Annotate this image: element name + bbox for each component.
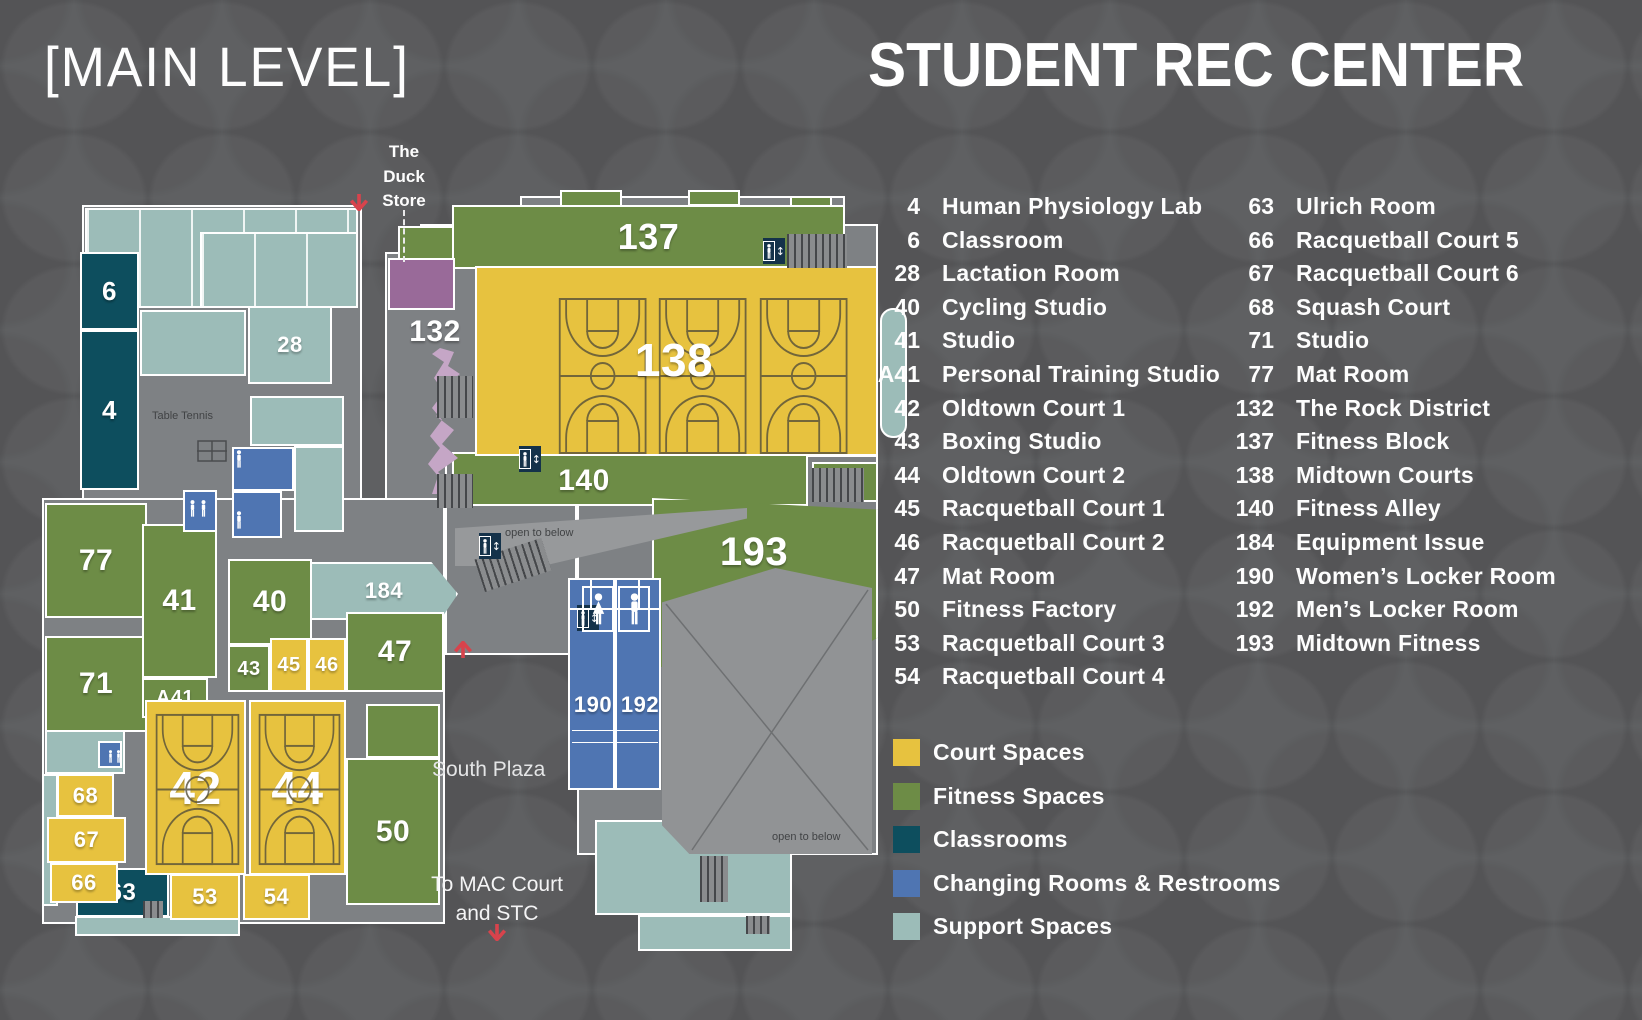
page-title-level: [MAIN LEVEL] [44, 34, 410, 99]
stairs-icon [787, 234, 847, 268]
room-46: 46 [308, 638, 346, 692]
room-label: 47 [378, 637, 412, 667]
color-legend: Court SpacesFitness SpacesClassroomsChan… [893, 731, 1281, 949]
directory-room-number: 190 [1212, 563, 1274, 590]
directory-entry: 63Ulrich Room [1212, 193, 1556, 227]
directory-room-name: Racquetball Court 3 [942, 630, 1165, 657]
room-label: 193 [720, 532, 788, 572]
directory-room-name: Midtown Fitness [1296, 630, 1481, 657]
room-label: 68 [73, 785, 98, 807]
room-71: 71 [45, 636, 147, 732]
directory-room-name: Cycling Studio [942, 294, 1107, 321]
directory-entry: 67Racquetball Court 6 [1212, 260, 1556, 294]
stairs-icon [812, 468, 864, 502]
duck-store-label: The Duck Store [368, 140, 440, 214]
directory-room-number: 77 [1212, 361, 1274, 388]
elevator-icon: ↕ [479, 533, 501, 559]
directory-room-number: 46 [872, 529, 920, 556]
directory-room-number: 132 [1212, 395, 1274, 422]
room-138: 138 [475, 266, 878, 456]
room-label: 28 [277, 334, 302, 356]
directory-room-name: Racquetball Court 6 [1296, 260, 1519, 287]
restroom-men-icon [234, 450, 244, 468]
directory-column-2: 63Ulrich Room66Racquetball Court 567Racq… [1212, 193, 1556, 663]
directory-room-number: 50 [872, 596, 920, 623]
map-area [250, 396, 344, 446]
to-mac-line: and STC [412, 899, 582, 928]
elevator-icon: ↕ [763, 238, 785, 264]
room-140: 140 [452, 452, 808, 506]
legend-swatch [893, 870, 920, 897]
locker-divider [590, 580, 592, 608]
climbing-wall [424, 348, 468, 494]
open-to-below-label: open to below [772, 831, 841, 843]
directory-room-name: Racquetball Court 5 [1296, 227, 1519, 254]
directory-room-number: 193 [1212, 630, 1274, 657]
directory-entry: 42Oldtown Court 1 [872, 395, 1220, 429]
stairs-icon [700, 856, 728, 902]
legend-label: Court Spaces [933, 739, 1085, 766]
directory-entry: A41Personal Training Studio [872, 361, 1220, 395]
room-53: 53 [170, 874, 240, 920]
directory-room-name: Equipment Issue [1296, 529, 1485, 556]
directory-entry: 71Studio [1212, 327, 1556, 361]
room-label: 138 [635, 337, 713, 383]
locker-divider [570, 608, 660, 610]
stairs-icon [437, 376, 473, 418]
directory-room-number: 68 [1212, 294, 1274, 321]
directory-room-name: Men’s Locker Room [1296, 596, 1519, 623]
map-area [388, 258, 455, 310]
directory-room-name: Fitness Block [1296, 428, 1449, 455]
room-label: 71 [79, 669, 113, 699]
directory-room-name: Mat Room [1296, 361, 1410, 388]
directory-entry: 44Oldtown Court 2 [872, 462, 1220, 496]
room-label: 67 [74, 829, 99, 851]
room-68: 68 [57, 774, 114, 817]
room-label: 50 [376, 817, 410, 847]
duck-store-line: Duck [368, 165, 440, 190]
room-67: 67 [47, 817, 126, 863]
directory-room-number: 42 [872, 395, 920, 422]
map-area [294, 446, 344, 532]
directory-entry: 190Women’s Locker Room [1212, 563, 1556, 597]
restroom-icon [115, 750, 122, 763]
directory-room-name: Racquetball Court 2 [942, 529, 1165, 556]
directory-room-number: 40 [872, 294, 920, 321]
room-label: 77 [79, 546, 113, 576]
room-44: 44 [249, 700, 346, 875]
directory-entry: 138Midtown Courts [1212, 462, 1556, 496]
directory-room-name: Oldtown Court 1 [942, 395, 1125, 422]
directory-room-number: 28 [872, 260, 920, 287]
legend-swatch [893, 913, 920, 940]
directory-room-name: Human Physiology Lab [942, 193, 1202, 220]
directory-room-number: A41 [872, 361, 920, 388]
directory-room-name: Racquetball Court 4 [942, 663, 1165, 690]
locker-divider [572, 742, 658, 743]
room-41: 41 [142, 524, 217, 678]
directory-entry: 45Racquetball Court 1 [872, 495, 1220, 529]
legend-item: Changing Rooms & Restrooms [893, 862, 1281, 906]
room-label: 4 [102, 397, 117, 423]
duck-store-line: Store [368, 189, 440, 214]
restroom-icon [199, 500, 208, 517]
room-77: 77 [45, 503, 147, 618]
directory-entry: 50Fitness Factory [872, 596, 1220, 630]
to-mac-line: To MAC Court [412, 870, 582, 899]
directory-room-name: Fitness Factory [942, 596, 1117, 623]
directory-room-name: Ulrich Room [1296, 193, 1436, 220]
directory-entry: 40Cycling Studio [872, 294, 1220, 328]
room-label: 43 [237, 659, 260, 679]
legend-item: Fitness Spaces [893, 775, 1281, 819]
directory-entry: 43Boxing Studio [872, 428, 1220, 462]
directory-entry: 28Lactation Room [872, 260, 1220, 294]
legend-item: Classrooms [893, 818, 1281, 862]
directory-room-number: 137 [1212, 428, 1274, 455]
directory-room-name: Studio [1296, 327, 1369, 354]
directory-entry: 41Studio [872, 327, 1220, 361]
legend-swatch [893, 826, 920, 853]
directory-entry: 47Mat Room [872, 563, 1220, 597]
directory-room-name: The Rock District [1296, 395, 1490, 422]
map-area [366, 704, 440, 758]
room-4: 4 [80, 330, 139, 490]
directory-entry: 132The Rock District [1212, 395, 1556, 429]
directory-room-name: Midtown Courts [1296, 462, 1474, 489]
duck-store-line: The [368, 140, 440, 165]
directory-entry: 66Racquetball Court 5 [1212, 227, 1556, 261]
legend-label: Changing Rooms & Restrooms [933, 870, 1281, 897]
directory-room-number: 192 [1212, 596, 1274, 623]
directory-room-number: 45 [872, 495, 920, 522]
directory-room-number: 43 [872, 428, 920, 455]
map-area [140, 310, 246, 376]
directory-room-name: Mat Room [942, 563, 1056, 590]
directory-entry: 140Fitness Alley [1212, 495, 1556, 529]
room-label: 6 [102, 278, 117, 304]
directory-room-number: 138 [1212, 462, 1274, 489]
directory-entry: 192Men’s Locker Room [1212, 596, 1556, 630]
elevator-icon: ↕ [519, 446, 541, 472]
room-label: 45 [277, 655, 300, 675]
directory-column-1: 4Human Physiology Lab6Classroom28Lactati… [872, 193, 1220, 697]
to-mac-label: To MAC Court and STC [412, 870, 582, 929]
room-label: 54 [264, 886, 289, 908]
room-47: 47 [346, 612, 444, 692]
directory-room-number: 67 [1212, 260, 1274, 287]
room-label: 41 [162, 586, 196, 616]
open-to-below-label: open to below [505, 527, 574, 539]
directory-room-number: 184 [1212, 529, 1274, 556]
room-54: 54 [243, 874, 310, 920]
locker-divider [638, 580, 640, 608]
directory-entry: 193Midtown Fitness [1212, 630, 1556, 664]
room-label: 184 [365, 580, 403, 602]
directory-room-name: Personal Training Studio [942, 361, 1220, 388]
directory-entry: 53Racquetball Court 3 [872, 630, 1220, 664]
legend-label: Classrooms [933, 826, 1068, 853]
directory-room-number: 140 [1212, 495, 1274, 522]
red-arrow-down-icon [350, 194, 368, 211]
table-tennis-label: Table Tennis [152, 410, 213, 422]
directory-room-number: 4 [872, 193, 920, 220]
leader-line [403, 210, 405, 262]
stairs-icon [746, 916, 770, 934]
legend-label: Fitness Spaces [933, 783, 1105, 810]
basketball-court-markings [257, 712, 342, 867]
room-label: 53 [192, 886, 217, 908]
directory-room-number: 71 [1212, 327, 1274, 354]
restroom-men-icon [234, 511, 244, 529]
directory-room-number: 41 [872, 327, 920, 354]
south-plaza-label: South Plaza [432, 758, 545, 782]
map-area [398, 226, 454, 262]
stairs-icon [143, 901, 163, 918]
room-label: 190 [574, 694, 612, 716]
room-label: 192 [621, 694, 659, 716]
directory-entry: 68Squash Court [1212, 294, 1556, 328]
table-tennis-icon [197, 440, 227, 462]
directory-room-name: Women’s Locker Room [1296, 563, 1556, 590]
directory-room-number: 47 [872, 563, 920, 590]
basketball-court-markings [154, 712, 241, 867]
room-6: 6 [80, 252, 139, 330]
open-to-below-area [662, 568, 872, 854]
room-42: 42 [145, 700, 246, 875]
room-45: 45 [270, 638, 308, 692]
room-label: 140 [558, 466, 610, 496]
room-66: 66 [50, 863, 118, 903]
legend-item: Court Spaces [893, 731, 1281, 775]
stairs-icon [437, 474, 473, 508]
legend-item: Support Spaces [893, 905, 1281, 949]
restroom-icon [188, 500, 197, 517]
directory-room-name: Oldtown Court 2 [942, 462, 1125, 489]
legend-label: Support Spaces [933, 913, 1112, 940]
directory-room-name: Classroom [942, 227, 1064, 254]
directory-room-name: Lactation Room [942, 260, 1120, 287]
room-label: 132 [409, 317, 461, 347]
locker-divider [572, 730, 658, 731]
map-area [688, 190, 740, 206]
room-132: 132 [390, 312, 480, 352]
directory-room-name: Fitness Alley [1296, 495, 1441, 522]
directory-room-number: 54 [872, 663, 920, 690]
red-arrow-up-icon [454, 641, 472, 658]
page-title-building: STUDENT REC CENTER [868, 30, 1524, 101]
directory-entry: 6Classroom [872, 227, 1220, 261]
directory-room-name: Studio [942, 327, 1015, 354]
directory-entry: 77Mat Room [1212, 361, 1556, 395]
directory-room-name: Boxing Studio [942, 428, 1102, 455]
directory-room-number: 53 [872, 630, 920, 657]
directory-room-number: 44 [872, 462, 920, 489]
room-label: 40 [253, 587, 287, 617]
directory-entry: 54Racquetball Court 4 [872, 663, 1220, 697]
directory-entry: 46Racquetball Court 2 [872, 529, 1220, 563]
legend-swatch [893, 739, 920, 766]
room-43: 43 [228, 645, 270, 692]
directory-entry: 4Human Physiology Lab [872, 193, 1220, 227]
legend-swatch [893, 783, 920, 810]
room-40: 40 [228, 559, 312, 645]
directory-room-name: Squash Court [1296, 294, 1450, 321]
room-label: 66 [71, 872, 96, 894]
map-area [200, 232, 358, 308]
room-label: 137 [618, 219, 680, 255]
directory-entry: 137Fitness Block [1212, 428, 1556, 462]
directory-room-name: Racquetball Court 1 [942, 495, 1165, 522]
room-28: 28 [248, 306, 332, 384]
directory-room-number: 6 [872, 227, 920, 254]
room-label: 46 [315, 655, 338, 675]
directory-room-number: 63 [1212, 193, 1274, 220]
directory-room-number: 66 [1212, 227, 1274, 254]
restroom-icon [107, 750, 114, 763]
directory-entry: 184Equipment Issue [1212, 529, 1556, 563]
